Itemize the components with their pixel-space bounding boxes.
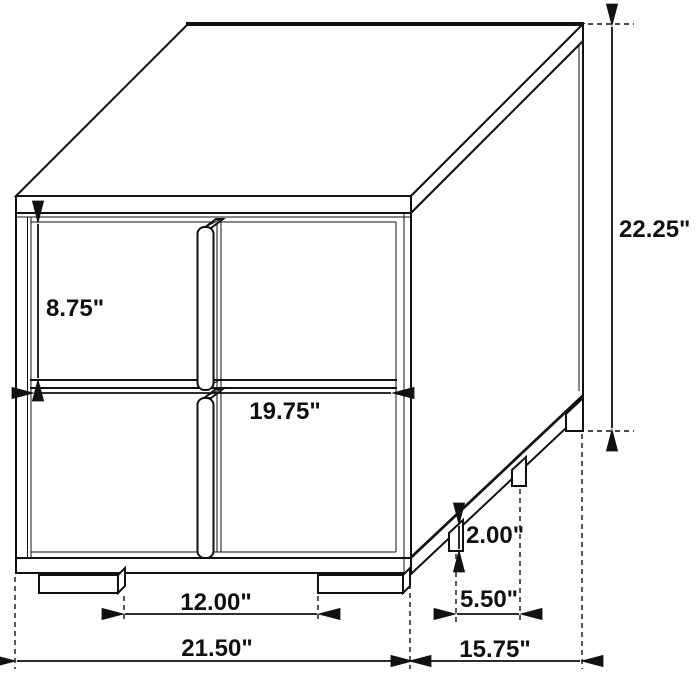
nightstand-dimension-drawing: 8.75" 19.75" 22.25" 2.00" 5.50" <box>0 0 700 700</box>
dimension-overall-height: 22.25" <box>612 27 690 428</box>
dimension-label-overall-depth: 15.75" <box>459 636 530 663</box>
dimension-label-overall-width: 21.50" <box>181 635 252 662</box>
dimension-side-leg-spacing: 5.50" <box>457 586 519 614</box>
dimension-overall-width: 21.50" <box>17 635 408 662</box>
dimension-front-leg-spacing: 12.00" <box>125 589 317 616</box>
dimension-label-leg-height: 2.00" <box>466 522 524 549</box>
dimension-overall-depth: 15.75" <box>414 636 580 663</box>
dimension-diagram-page: 8.75" 19.75" 22.25" 2.00" 5.50" <box>0 0 700 700</box>
dimension-label-front-leg-spacing: 12.00" <box>180 589 251 616</box>
dimension-label-drawer-height: 8.75" <box>46 295 104 322</box>
dimension-label-drawer-width: 19.75" <box>249 398 320 425</box>
dimension-label-side-leg-spacing: 5.50" <box>460 586 518 613</box>
dimension-label-overall-height: 22.25" <box>619 216 690 243</box>
dimension-leg-height: 2.00" <box>459 522 524 549</box>
